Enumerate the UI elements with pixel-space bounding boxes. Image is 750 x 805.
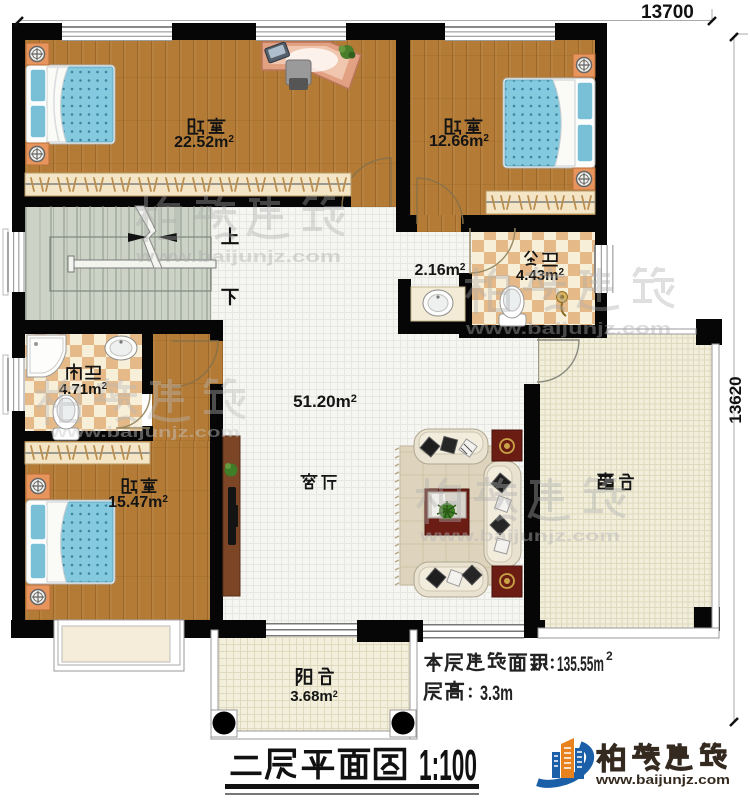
svg-text:15.47m2: 15.47m2: [108, 494, 168, 511]
svg-text:3.3m: 3.3m: [480, 682, 513, 705]
svg-text:3.68m2: 3.68m2: [290, 688, 338, 705]
svg-text:www.baijunjz.com: www.baijunjz.com: [49, 424, 240, 441]
svg-text:13700: 13700: [641, 2, 694, 23]
svg-text:51.20m2: 51.20m2: [293, 392, 357, 411]
svg-text:www.baijunjz.com: www.baijunjz.com: [135, 247, 341, 266]
svg-text:2.16m2: 2.16m2: [415, 262, 466, 279]
svg-text:135.55m: 135.55m: [557, 653, 604, 676]
svg-text:www.baijunjz.com: www.baijunjz.com: [595, 773, 730, 787]
svg-text:www.baijunjz.com: www.baijunjz.com: [419, 528, 620, 545]
svg-text:www.baijunjz.com: www.baijunjz.com: [465, 319, 671, 338]
svg-text:22.52m2: 22.52m2: [174, 134, 234, 151]
svg-text:12.66m2: 12.66m2: [429, 133, 489, 150]
svg-text:13620: 13620: [726, 376, 745, 423]
svg-text:1:100: 1:100: [419, 741, 477, 790]
svg-text:2: 2: [606, 649, 613, 663]
